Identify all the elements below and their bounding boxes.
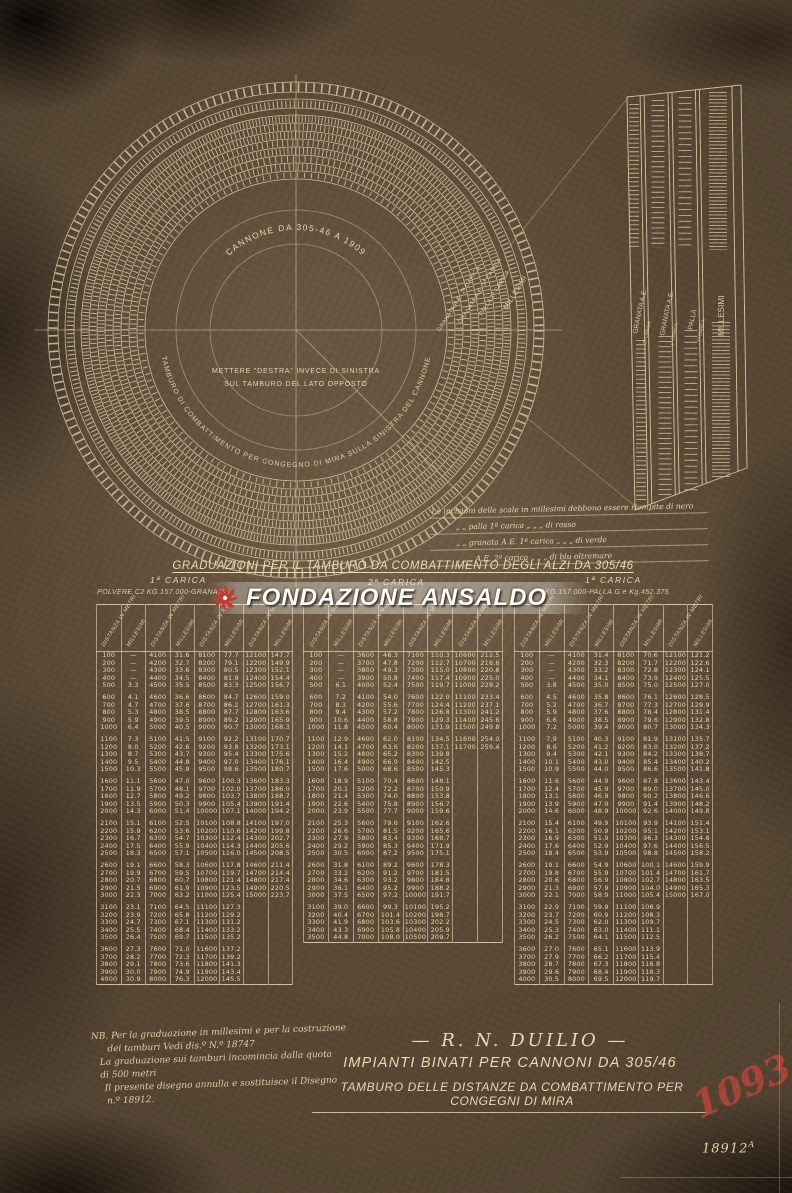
table-row: 200—420032.3820071.712200122.6 [515,660,713,668]
table-row: 190022.6540075.88900156.7 [304,801,503,809]
table-row: 200—420032.7820079.112200149.9 [97,660,293,668]
frame-line-horizontal [620,1177,792,1178]
table-row: 10007.2500039.4900080.713000134.3 [515,724,713,732]
table-row: 140010.1540043.0940085.413400140.2 [515,759,713,767]
table-row: 8009.4430057.27800126.811300241.2 [304,709,503,717]
table-row: 260031.8610089.29600178.3 [304,862,503,870]
table-row: 390029.6790068.411900118.3 [515,969,713,977]
table-row: 300—430033.6830080.512300152.1 [97,667,293,675]
ship-title: — R. N. DUILIO — [350,1030,690,1051]
table-row: 340025.5740068.411400133.2 [97,927,293,935]
graduations-heading: GRADUAZIONI PER IL TAMBURO DA COMBATTIME… [168,560,638,572]
table-row: 230027.9580083.49300168.7 [304,835,503,843]
table-row: 14009.5540044.8940097.013400178.1 [97,759,293,767]
mount-title: IMPIANTI BINATI PER CANNONI DA 305/46 [330,1055,690,1071]
table-row: 400—440034.1840073.912400125.5 [515,675,713,683]
table-row: 270033.2620091.29700181.5 [304,870,503,878]
table-row: 360027.3760071.011600137.2 [97,946,293,954]
table-row: 140016.4490066.98400142.5 [304,759,503,767]
drawing-title: TAMBURO DELLE DISTANZE DA COMBATTIMENTO … [312,1080,712,1113]
carica-label-1: 1ª CARICA [150,575,207,585]
table-row: 400030.5800069.512000119.7 [515,976,713,984]
table-row: 200023.9550077.79000159.6 [304,808,503,816]
table-row: 180012.7580049.29800103.713800188.7 [97,793,293,801]
table-row: 350044.87000108.010500209.7 [304,934,503,942]
table-row: 7004.7470037.6870086.212700161.3 [97,702,293,710]
table-row: 400—440034.5840081.912400154.4 [97,675,293,683]
table-row: 150010.9550044.0950086.613500141.8 [515,766,713,774]
table-row: 5003.8450035.0850075.012500127.0 [515,682,713,690]
archive-watermark: FONDAZIONE ANSALDO [210,582,588,614]
range-table-carica-1-palla: DISTANZA IN METRIMILLESIMIDISTANZA IN ME… [514,604,713,985]
table-row: 380028.7780067.311800116.8 [515,961,713,969]
table-row: 100—360046.37100110.310600212.5 [304,652,503,660]
table-row: 12008.0520042.6920093.813200173.1 [97,744,293,752]
table-row: 220015.9620053.610200110.614200199.8 [97,828,293,836]
table-row: 270019.9670059.510700119.714700214.4 [97,870,293,878]
table-row: 280020.6680056.910800102.714800163.5 [515,877,713,885]
table-row: 190013.9590047.9990091.413900148.2 [515,801,713,809]
table-row: 310022.9710059.911100106.9 [515,904,713,912]
table-row: 220016.1620050.91020095.114200153.1 [515,828,713,836]
table-row: 360027.0760065.111600113.9 [515,946,713,954]
table-row: 310039.0660099.310100195.2 [304,904,503,912]
table-row: 300037.5650097.210000191.7 [304,892,503,900]
frame-line-vertical [779,1003,780,1193]
table-row: 11007.9510040.3910081.913100135.7 [515,736,713,744]
table-row: 220026.6570081.59200165.6 [304,828,503,836]
dial-center-note-line1: METTERE "DESTRA" INVECE DI SINISTRA [212,368,380,375]
table-row: 250030.5600087.29500175.1 [304,850,503,858]
table-row: 400—390050.87400117.410900225.0 [304,675,503,683]
table-row: 170011.9570048.19700102.013700186.0 [97,786,293,794]
column-header: MILLESIMI [688,605,713,652]
table-row: 290036.1640095.29900188.2 [304,885,503,893]
table-row: 300—430033.2830072.812300124.1 [515,667,713,675]
table-row: 170012.4570045.9970089.013700145.0 [515,786,713,794]
drawing-number-value: 18912 [702,1141,748,1156]
table-row: 210025.3560079.69100162.6 [304,820,503,828]
table-row: 170020.1520072.28700150.9 [304,786,503,794]
table-row: 250018.3650057.110500116.014500208.5 [97,850,293,858]
table-row: 290021.3690057.910900104.014900165.3 [515,885,713,893]
table-row: 150010.3550045.9950098.613500180.7 [97,766,293,774]
technical-drawing-page: CANNONE DA 305-46 A 1909 TAMBURO DI COMB… [0,0,792,1193]
table-row: 240029.2590085.39400171.9 [304,843,503,851]
table-row: 280034.6630093.29800184.8 [304,877,503,885]
table-row: 100—410031.4810070.612100121.2 [515,652,713,660]
carica-label-3: 1ª CARICA [585,575,642,585]
table-row: 100011.8450060.48000131.911500249.8 [304,724,503,732]
table-row: 230016.9630051.91030096.314300154.8 [515,835,713,843]
table-row: 260019.1660058.310600117.814600211.4 [97,862,293,870]
table-row: 10006.4500040.5900090.713000168.3 [97,724,293,732]
table-row: 13009.4530042.1930084.213300138.7 [515,751,713,759]
table-row: 320023.7720060.911200108.3 [515,912,713,920]
column-header: MILLESIMI [589,605,614,652]
table-row: 350026.2750064.111500112.5 [515,934,713,942]
table-row: 6004.1460036.6860084.712600159.0 [97,694,293,702]
table-row: 370028.2770072.311700139.2 [97,954,293,962]
svg-text:1ª CARICA: 1ª CARICA [696,318,706,342]
drawing-number-suffix: A [748,1140,755,1149]
table-row: 180013.1580046.9980090.213800146.6 [515,793,713,801]
table-row: 340043.36900105.810400205.9 [304,927,503,935]
table-row: 110012.9460062.08100134.511600254.0 [304,736,503,744]
table-row: 7005.2470036.7870077.312700129.9 [515,702,713,710]
table-row: 330041.96800103.610300202.2 [304,919,503,927]
column-header: MILLESIMI [170,605,195,652]
table-row: 180021.4530074.08800153.8 [304,793,503,801]
table-row: 90010.6440058.87900129.311400245.6 [304,717,503,725]
dial-center-note-line2: SUL TAMBURO DEL LATO OPPOSTO [224,381,367,388]
table-row: 5006.1400052.47500119.711000229.2 [304,682,503,690]
column-header: DISTANZA IN METRI [146,605,171,652]
svg-text:2ª CARICA: 2ª CARICA [642,320,652,344]
drawing-number: 18912A [702,1140,755,1156]
table-row: 230016.7630054.710300112.414300202.7 [97,835,293,843]
table-row: 160011.1560047.09600100.313600183.3 [97,778,293,786]
table-row: 160018.9510070.48600148.1 [304,778,503,786]
scale-detail-fan: GRANATA A.E. 2ª CARICA GRANATA A.E. 1ª C… [627,85,747,510]
table-row: 350026.4750069.711500135.2 [97,934,293,942]
table-row: 13008.7530043.7930095.413300175.6 [97,751,293,759]
table-row: 370027.9770066.211700115.4 [515,954,713,962]
column-header: MILLESIMI [121,605,146,652]
svg-text:PALLA: PALLA [687,308,698,330]
table-row: 210015.4610049.91010093.914100151.4 [515,820,713,828]
pinwheel-icon [210,583,240,613]
table-row: 320040.46700101.410200198.7 [304,912,503,920]
table-row: 200014.3600051.410000107.114000194.2 [97,808,293,816]
table-row: 150017.6500068.68500145.3 [304,766,503,774]
column-header: DISTANZA IN METRI [97,605,122,652]
table-row: 9005.9490039.5890089.212900165.9 [97,717,293,725]
table-row: 300—380049.37300115.010800220.8 [304,667,503,675]
table-row: 190013.5590050.39900105.413900191.4 [97,801,293,809]
range-table-carica-1-granata: DISTANZA IN METRIMILLESIMIDISTANZA IN ME… [96,604,293,985]
table-row: 330024.7730067.111300131.2 [97,919,293,927]
table-row: 260019.1660054.910600100.114600159.9 [515,862,713,870]
table-row: 8005.3480038.5880087.712800163.6 [97,709,293,717]
column-header: DISTANZA IN METRI [614,605,639,652]
table-row: 300022.1700058.911000105.415000167.0 [515,892,713,900]
table-row: 390030.0790074.911900143.4 [97,969,293,977]
table-row: 330024.5730062.011300109.7 [515,919,713,927]
table-row: 9006.6490038.5890079.612900132.8 [515,717,713,725]
column-header: MILLESIMI [638,605,663,652]
table-row: 130015.2480065.28300139.8 [304,751,503,759]
table-row: 200014.6600048.91000092.614000149.8 [515,808,713,816]
table-row: 310023.1710064.511100127.3 [97,904,293,912]
table-row: 340025.3740063.011400111.1 [515,927,713,935]
table-row: 210015.1610052.510100108.814100197.0 [97,820,293,828]
table-row: 270019.8670055.910700101.414700161.7 [515,870,713,878]
table-row: 300022.3700063.211000125.415000223.7 [97,892,293,900]
table-row: 380029.1780073.611800141.3 [97,961,293,969]
table-row: 6004.5460035.8860076.112600128.5 [515,694,713,702]
table-row: 250018.4650053.91050098.814500158.2 [515,850,713,858]
table-row: 240017.5640055.910400114.314400205.6 [97,843,293,851]
table-row: 200—370047.87200112.710700216.6 [304,660,503,668]
table-row: 6007.2410054.07600122.011100233.4 [304,694,503,702]
column-header: DISTANZA IN METRI [663,605,688,652]
table-row: 12008.6520041.2920083.013200137.2 [515,744,713,752]
table-row: 100—410031.6810077.712100147.7 [97,652,293,660]
table-caption-1: POLVERE C2 KG.157.000-GRANATA [97,589,227,596]
table-row: 290021.5690061.910900123.514900220.5 [97,885,293,893]
table-row: 280020.7680060.710800121.414800217.4 [97,877,293,885]
table-row: 160011.6560044.9960087.813600143.4 [515,778,713,786]
svg-text:1ª CARICA: 1ª CARICA [669,322,679,346]
svg-text:MILLESIMI: MILLESIMI [717,296,726,337]
table-row: 240017.6640052.91040097.614400156.5 [515,843,713,851]
range-table-carica-2-granata: DISTANZA IN METRIMILLESIMIDISTANZA IN ME… [303,604,503,943]
table-row: 400030.9800076.312000145.5 [97,976,293,984]
table-row: 120014.1470063.68200137.111700259.4 [304,744,503,752]
table-row: 320023.9720065.811200129.2 [97,912,293,920]
table-row: 11007.3510041.5910092.213100170.7 [97,736,293,744]
watermark-text: FONDAZIONE ANSALDO [246,584,547,612]
table-row: 7008.3420055.67700124.411200237.1 [304,702,503,710]
table-row: 5003.3450035.5850083.312500156.7 [97,682,293,690]
table-row: 8005.9480037.6880078.412800131.4 [515,709,713,717]
fan-labels: GRANATA A.E. 2ª CARICA GRANATA A.E. 1ª C… [632,288,726,346]
